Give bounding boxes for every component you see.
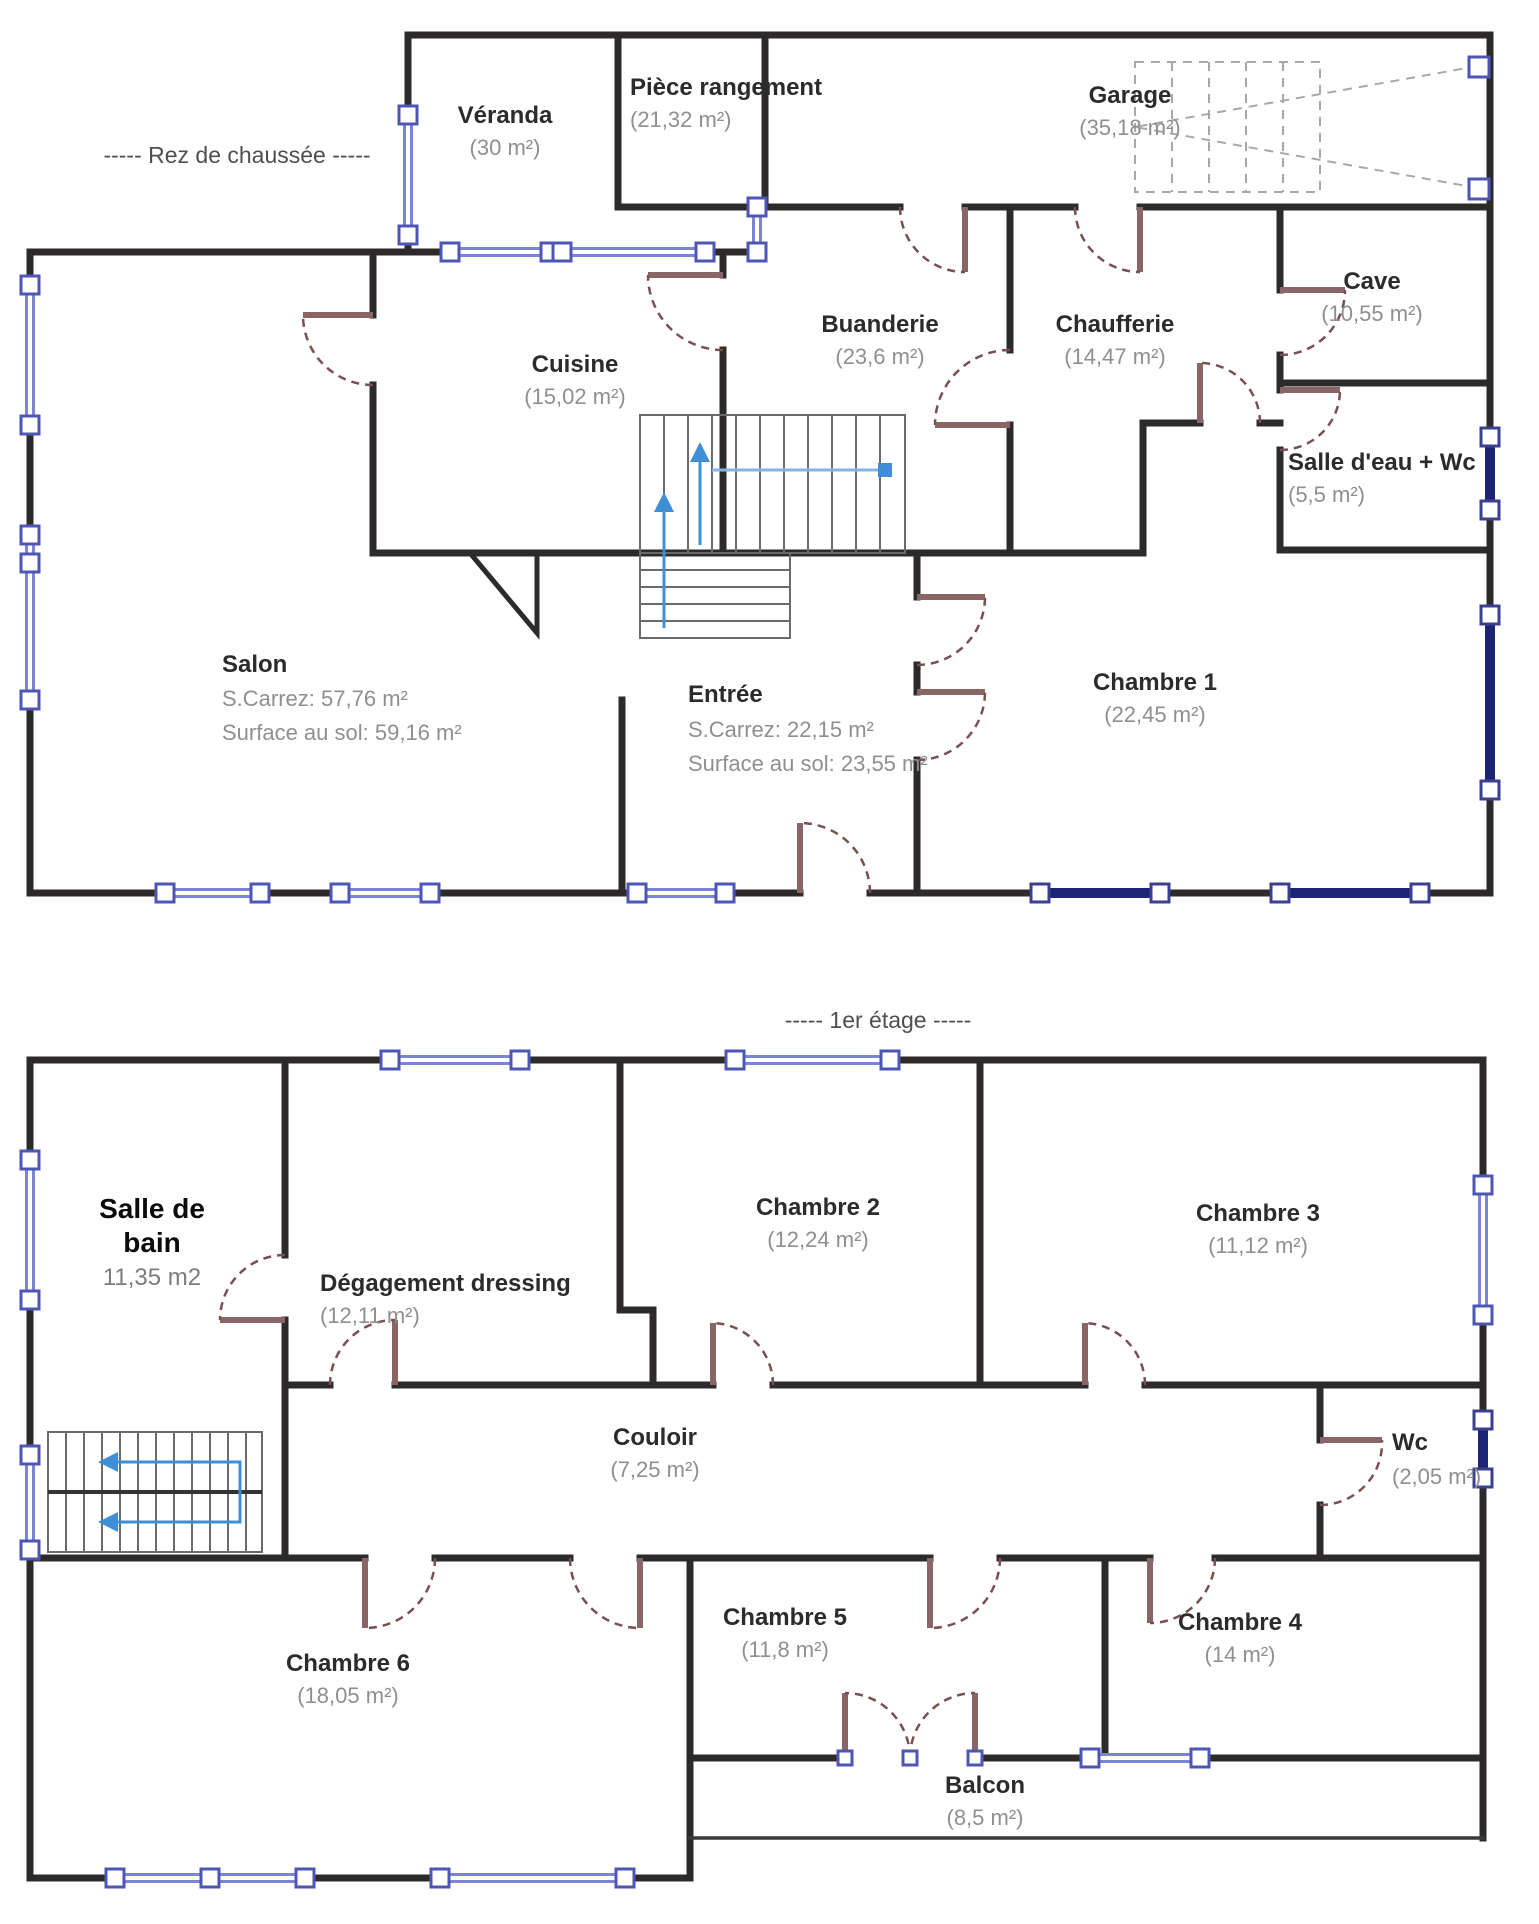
- room-name: Cave: [1343, 268, 1400, 295]
- room-name: Garage: [1089, 82, 1172, 109]
- room-label-wc: Wc (2,05 m²): [1392, 1429, 1481, 1489]
- room-area: 11,35 m2: [103, 1264, 201, 1291]
- first-floor-title: ----- 1er étage -----: [785, 1007, 972, 1033]
- room-label-garage: Garage (35,18 m²): [1079, 82, 1180, 140]
- door: [220, 1255, 285, 1320]
- room-area: (12,24 m²): [767, 1227, 868, 1252]
- room-name: Cuisine: [532, 351, 619, 378]
- window: [628, 884, 734, 902]
- room-area: (5,5 m²): [1288, 482, 1365, 507]
- window: [431, 1869, 634, 1887]
- room-carrez: S.Carrez: 22,15 m²: [688, 717, 874, 742]
- door: [800, 823, 870, 893]
- window: [21, 1151, 39, 1309]
- room-area: (12,11 m²): [320, 1303, 420, 1328]
- room-label-salle-de-bain: Salle de bain 11,35 m2: [99, 1193, 205, 1291]
- room-area: (2,05 m²): [1392, 1464, 1481, 1489]
- room-name: Entrée: [688, 681, 763, 708]
- room-label-chaufferie: Chaufferie (14,47 m²): [1056, 311, 1175, 369]
- room-name: Chambre 5: [723, 1604, 847, 1631]
- door: [930, 1558, 1000, 1628]
- room-area: (14,47 m²): [1064, 344, 1165, 369]
- window: [1481, 428, 1499, 519]
- room-name: Couloir: [613, 1424, 697, 1451]
- window: [21, 1446, 39, 1559]
- room-area: (10,55 m²): [1321, 301, 1422, 326]
- door: [917, 597, 985, 665]
- room-name: Dégagement dressing: [320, 1270, 571, 1297]
- room-area: (14 m²): [1205, 1642, 1276, 1667]
- first-floor-plan: ----- 1er étage ----- Salle de bain 11,3…: [21, 1007, 1492, 1887]
- room-label-chambre-3: Chambre 3 (11,12 m²): [1196, 1200, 1320, 1258]
- room-name: Chambre 3: [1196, 1200, 1320, 1227]
- room-label-buanderie: Buanderie (23,6 m²): [821, 311, 938, 369]
- floor-plan-drawing: ----- Rez de chaussée ----- Véranda (30 …: [0, 0, 1539, 1924]
- room-name-line2: bain: [123, 1227, 181, 1258]
- window: [441, 243, 559, 261]
- window: [1031, 884, 1169, 902]
- room-label-salon: Salon S.Carrez: 57,76 m² Surface au sol:…: [222, 651, 462, 745]
- room-label-salle-eau-wc: Salle d'eau + Wc (5,5 m²): [1288, 449, 1476, 507]
- door: [1320, 1440, 1382, 1505]
- door: [1085, 1323, 1145, 1385]
- room-area: (23,6 m²): [835, 344, 924, 369]
- room-label-entree: Entrée S.Carrez: 22,15 m² Surface au sol…: [688, 681, 928, 776]
- window: [748, 198, 766, 261]
- room-label-chambre-5: Chambre 5 (11,8 m²): [723, 1604, 847, 1662]
- window: [1271, 884, 1429, 902]
- door: [900, 207, 965, 272]
- salon-corner-niche: [470, 553, 537, 633]
- window: [331, 884, 439, 902]
- door: [1075, 207, 1140, 272]
- room-area: (11,12 m²): [1208, 1233, 1308, 1258]
- room-area: (22,45 m²): [1104, 702, 1205, 727]
- door: [303, 315, 373, 385]
- floor-plan-page: ----- Rez de chaussée ----- Véranda (30 …: [0, 0, 1539, 1924]
- garage-staircase-dashed: [1135, 57, 1489, 199]
- room-label-chambre-4: Chambre 4 (14 m²): [1178, 1609, 1303, 1667]
- ground-floor-title: ----- Rez de chaussée -----: [103, 142, 370, 168]
- room-name: Chambre 4: [1178, 1609, 1303, 1636]
- first-floor-walls: [30, 1060, 1483, 1878]
- room-name: Chambre 1: [1093, 669, 1217, 696]
- room-name: Salle d'eau + Wc: [1288, 449, 1476, 476]
- window: [1481, 606, 1499, 799]
- room-label-cave: Cave (10,55 m²): [1321, 268, 1422, 326]
- room-name: Véranda: [458, 102, 553, 129]
- room-area: (30 m²): [470, 135, 541, 160]
- window: [553, 243, 714, 261]
- door: [365, 1558, 435, 1628]
- staircase: [48, 1432, 262, 1552]
- room-label-veranda: Véranda (30 m²): [458, 102, 553, 160]
- room-label-balcon: Balcon (8,5 m²): [945, 1772, 1025, 1830]
- room-surface: Surface au sol: 23,55 m²: [688, 751, 928, 776]
- french-door: [838, 1693, 982, 1765]
- room-area: (15,02 m²): [524, 384, 625, 409]
- room-name: Chambre 2: [756, 1194, 880, 1221]
- window: [156, 884, 269, 902]
- room-name: Wc: [1392, 1429, 1428, 1456]
- room-area: (7,25 m²): [610, 1457, 699, 1482]
- room-name: Balcon: [945, 1772, 1025, 1799]
- window: [726, 1051, 899, 1069]
- room-area: (11,8 m²): [741, 1637, 829, 1662]
- room-name: Buanderie: [821, 311, 938, 338]
- window: [1474, 1176, 1492, 1324]
- room-name: Chaufferie: [1056, 311, 1175, 338]
- window: [106, 1869, 314, 1887]
- window: [21, 276, 39, 434]
- room-label-cuisine: Cuisine (15,02 m²): [524, 351, 625, 409]
- room-surface: Surface au sol: 59,16 m²: [222, 720, 462, 745]
- door: [917, 692, 985, 760]
- window: [21, 526, 39, 709]
- room-area: (8,5 m²): [947, 1805, 1024, 1830]
- room-label-degagement-dressing: Dégagement dressing (12,11 m²): [320, 1270, 571, 1328]
- room-name: Chambre 6: [286, 1650, 410, 1677]
- door: [713, 1323, 773, 1385]
- room-label-couloir: Couloir (7,25 m²): [610, 1424, 699, 1482]
- window: [399, 106, 417, 244]
- door: [648, 275, 723, 350]
- room-name: Pièce rangement: [630, 74, 822, 101]
- door: [935, 350, 1010, 425]
- room-area: (18,05 m²): [297, 1683, 398, 1708]
- door: [570, 1558, 640, 1628]
- room-name-line1: Salle de: [99, 1193, 205, 1224]
- room-name: Salon: [222, 651, 287, 678]
- room-label-chambre-2: Chambre 2 (12,24 m²): [756, 1194, 880, 1252]
- window: [381, 1051, 529, 1069]
- room-label-chambre-1: Chambre 1 (22,45 m²): [1093, 669, 1217, 727]
- door: [1280, 390, 1340, 450]
- door: [1200, 363, 1260, 423]
- staircase: [640, 415, 905, 638]
- door: [330, 1320, 395, 1385]
- room-area: (21,32 m²): [630, 107, 731, 132]
- window: [1081, 1749, 1209, 1767]
- ground-floor-plan: ----- Rez de chaussée ----- Véranda (30 …: [21, 35, 1499, 902]
- room-carrez: S.Carrez: 57,76 m²: [222, 686, 408, 711]
- room-label-piece-rangement: Pièce rangement (21,32 m²): [630, 74, 822, 132]
- room-area: (35,18 m²): [1079, 115, 1180, 140]
- room-label-chambre-6: Chambre 6 (18,05 m²): [286, 1650, 410, 1708]
